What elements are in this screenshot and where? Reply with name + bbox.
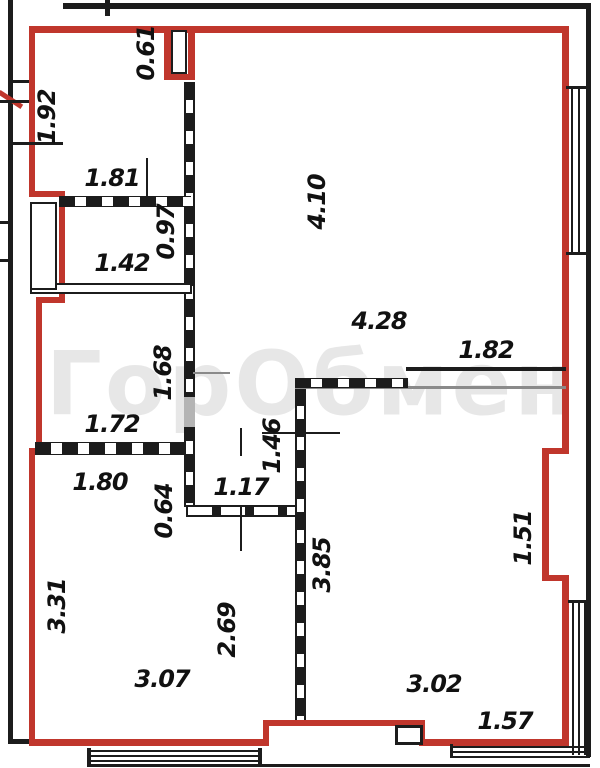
window-bottom-right-line-1 [452, 746, 590, 748]
wall-kitchen-top-line [406, 367, 566, 371]
boundary-wall-top [29, 26, 568, 33]
dim-label-1-92: 1.92 [35, 89, 59, 144]
outer-wall-right [586, 3, 591, 757]
window-right-bottom-pane-2 [578, 603, 580, 755]
window-right-top-pane-2 [578, 89, 580, 252]
dim-tick-9 [0, 221, 8, 224]
dim-label-1-81: 1.81 [84, 166, 139, 190]
window-bottom-left-line-1 [87, 750, 262, 752]
dim-label-4-28: 4.28 [351, 309, 406, 333]
outer-wall-top [63, 3, 590, 9]
vent-niche-wall-bottom [164, 74, 195, 80]
dim-label-4-10: 4.10 [305, 174, 329, 229]
outer-wall-top-stub [105, 0, 110, 16]
boundary-wall-right-1 [562, 26, 569, 454]
dim-label-3-07: 3.07 [134, 667, 189, 691]
dim-label-0-64: 0.64 [152, 483, 176, 538]
window-right-bottom-pane-1 [572, 603, 574, 755]
dim-label-1-68: 1.68 [151, 345, 175, 400]
vent-shaft-box [171, 30, 187, 74]
dim-label-1-72: 1.72 [84, 412, 139, 436]
dim-label-2-69: 2.69 [215, 602, 239, 657]
dim-label-1-80: 1.80 [72, 470, 127, 494]
dim-tick-10 [0, 259, 8, 262]
boundary-wall-bottom-1 [29, 739, 269, 746]
window-right-bottom-pane-3 [584, 603, 586, 755]
window-bottom-right-cap [450, 744, 453, 758]
dim-label-1-46: 1.46 [260, 418, 284, 473]
window-bottom-right-line-3 [452, 756, 590, 758]
boundary-wall-left-3 [36, 297, 42, 453]
wall-kitchen-dashed-part [295, 378, 408, 388]
window-right-top-pane-1 [571, 89, 573, 252]
vent-niche-wall-left [164, 26, 171, 80]
dim-tick-7 [240, 428, 242, 456]
door-opening-hall-living [184, 397, 195, 427]
vent-niche-wall-right [188, 26, 195, 80]
wall-room-kitchen [295, 388, 306, 720]
dim-tick-1 [13, 80, 29, 83]
wall-demolished-1-80 [35, 442, 186, 455]
wall-corridor-bottom [186, 505, 304, 517]
dim-label-1-42: 1.42 [94, 251, 149, 275]
dim-label-1-51: 1.51 [511, 510, 535, 565]
window-bottom-left-line-3 [87, 760, 262, 762]
column-box [395, 725, 423, 745]
dim-tick-8 [240, 505, 242, 551]
floor-plan: ГорОбмен [0, 0, 600, 768]
dim-tick-5 [193, 372, 230, 374]
window-bottom-left-line-2 [87, 755, 262, 757]
dim-label-1-82: 1.82 [458, 338, 513, 362]
outer-wall-left [8, 0, 13, 744]
window-bottom-right-line-2 [452, 751, 590, 753]
wall-niche-box [30, 202, 57, 290]
balcony-outer-line [87, 764, 590, 767]
window-right-top-tick-b [566, 252, 590, 255]
dim-label-3-31: 3.31 [45, 578, 69, 633]
dim-label-1-17: 1.17 [213, 475, 268, 499]
dim-label-3-02: 3.02 [406, 672, 461, 696]
boundary-wall-left-4 [29, 448, 35, 746]
dim-label-1-57: 1.57 [477, 709, 532, 733]
dim-tick-4 [146, 158, 148, 204]
dim-label-0-97: 0.97 [154, 204, 178, 259]
dim-label-0-61: 0.61 [134, 25, 158, 80]
boundary-wall-bottom-3 [419, 739, 569, 746]
dim-label-3-85: 3.85 [310, 537, 334, 592]
dim-tick-2 [0, 100, 29, 103]
boundary-wall-right-2 [542, 448, 549, 581]
